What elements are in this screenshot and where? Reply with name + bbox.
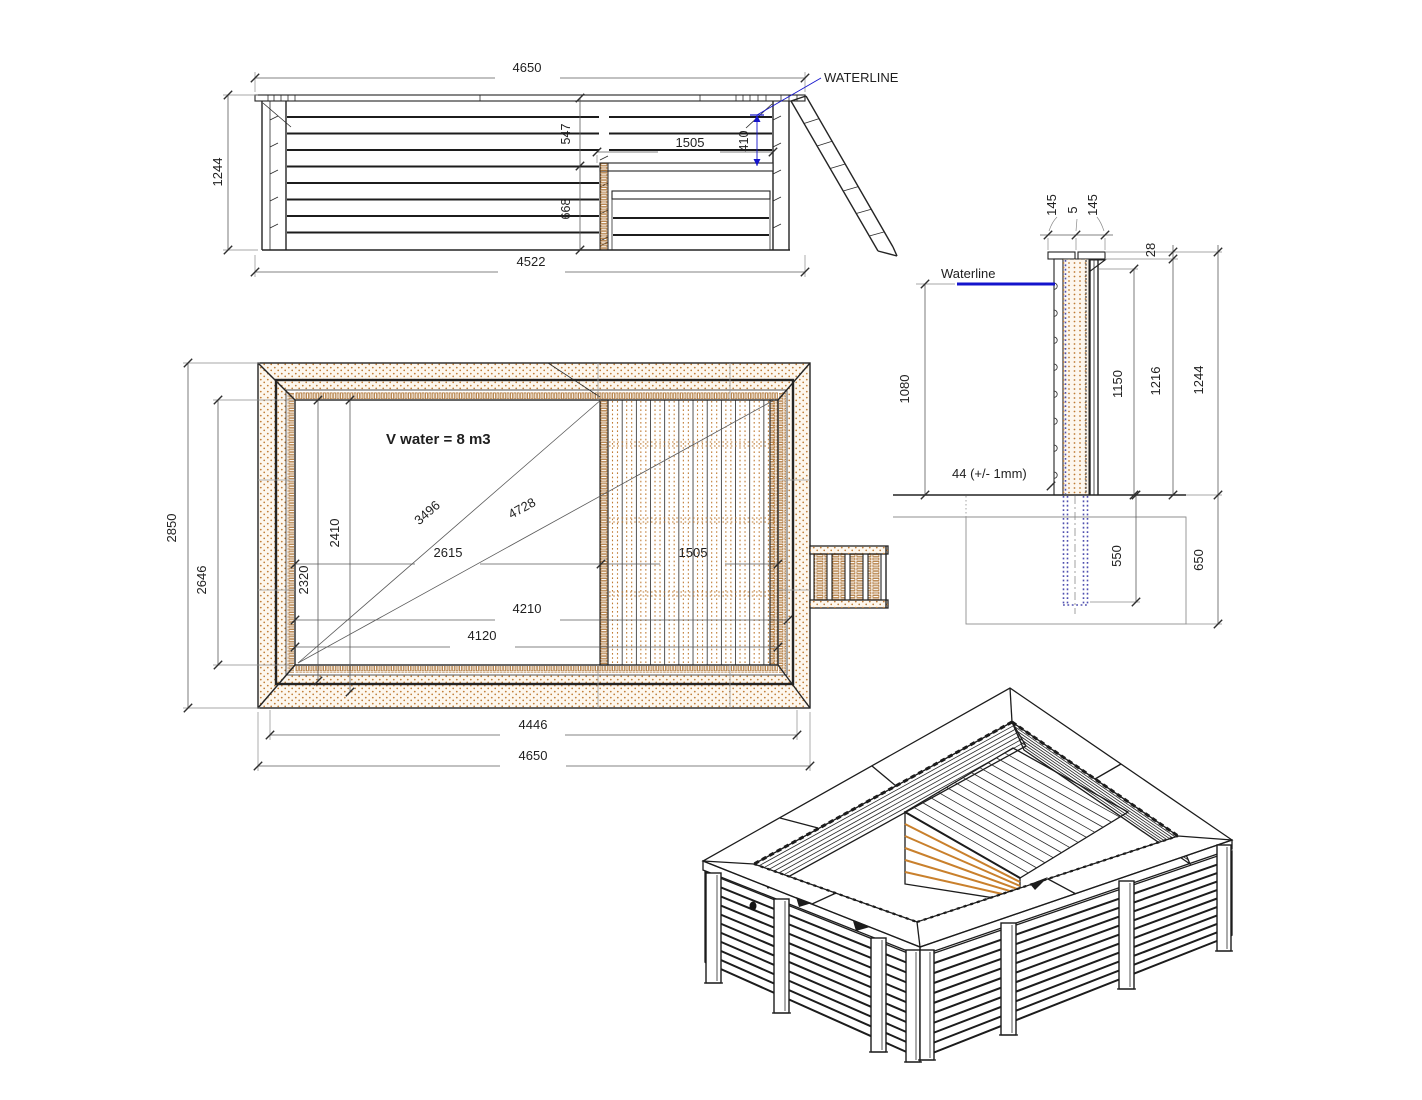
dim-outer-width: 2850 (164, 514, 179, 543)
dim-inner-length: 4446 (519, 717, 548, 732)
dim-anchor-depth: 550 (1109, 545, 1124, 567)
dim-seat-length: 1505 (676, 135, 705, 150)
dim-inner-height: 1150 (1110, 370, 1125, 398)
dim-4210: 4210 (513, 601, 542, 616)
dim-foundation-depth: 650 (1191, 549, 1206, 571)
dim-cap-inner: 145 (1085, 194, 1100, 216)
dim-inner-width: 2646 (194, 566, 209, 595)
dim-outer-length: 4650 (519, 748, 548, 763)
dim-diag-long: 4728 (506, 494, 539, 521)
dim-water-depth: 1080 (897, 375, 912, 404)
plan-inner-edge (295, 400, 778, 665)
section-cap-outer (1048, 252, 1075, 259)
plank-thickness-label: 44 (+/- 1mm) (952, 466, 1027, 481)
dim-2410: 2410 (327, 519, 342, 548)
ladder-rungs (804, 119, 884, 236)
section-waterline-label: Waterline (941, 266, 995, 281)
plan-bench-slats (600, 400, 778, 665)
dim-2320: 2320 (296, 566, 311, 595)
dim-left-to-bench: 2615 (434, 545, 463, 560)
waterline-label: WATERLINE (824, 70, 899, 85)
dim-top-to-seat: 547 (559, 124, 573, 145)
dim-total-height: 1244 (1191, 366, 1206, 395)
section-foundation (893, 495, 1186, 624)
dim-waterline-to-seat: 410 (737, 131, 751, 152)
section-cap-inner (1078, 252, 1105, 259)
dim-cap-thickness: 28 (1143, 243, 1158, 257)
dim-base-width: 4522 (517, 254, 546, 269)
plan-ladder (810, 546, 888, 608)
dim-cap-gap: 5 (1065, 206, 1080, 213)
dim-height: 1244 (210, 158, 225, 187)
plan-view: V water = 8 m3 3496 4728 2850 (164, 359, 888, 771)
dim-cap-outer: 145 (1044, 194, 1059, 216)
dim-bench-length: 1505 (679, 545, 708, 560)
elevation-view: 4650 1244 547 1505 668 4522 WATERLINE 41… (210, 60, 899, 277)
technical-drawing-page: 4650 1244 547 1505 668 4522 WATERLINE 41… (0, 0, 1422, 1100)
section-wall-outer-plank (1054, 259, 1063, 495)
volume-label: V water = 8 m3 (386, 431, 491, 448)
elevation-coping (255, 95, 805, 101)
iso-inner-wall-nw (756, 725, 1024, 884)
section-waterline: Waterline (916, 266, 1055, 284)
dim-4120: 4120 (468, 628, 497, 643)
dim-diag-short: 3496 (411, 497, 443, 527)
iso-skimmer-hole (750, 902, 757, 911)
section-view: Waterline 145 5 145 (893, 194, 1222, 628)
elevation-ladder (791, 96, 897, 256)
plan-diagonals: 3496 4728 (298, 399, 776, 663)
section-cap-bracket (1089, 260, 1105, 272)
dim-seat-height: 668 (559, 199, 573, 220)
drawing-canvas: 4650 1244 547 1505 668 4522 WATERLINE 41… (0, 0, 1422, 1100)
dim-wall-height: 1216 (1148, 367, 1163, 396)
isometric-view (703, 688, 1233, 1062)
dim-top-width: 4650 (513, 60, 542, 75)
elevation-bench (600, 163, 773, 250)
